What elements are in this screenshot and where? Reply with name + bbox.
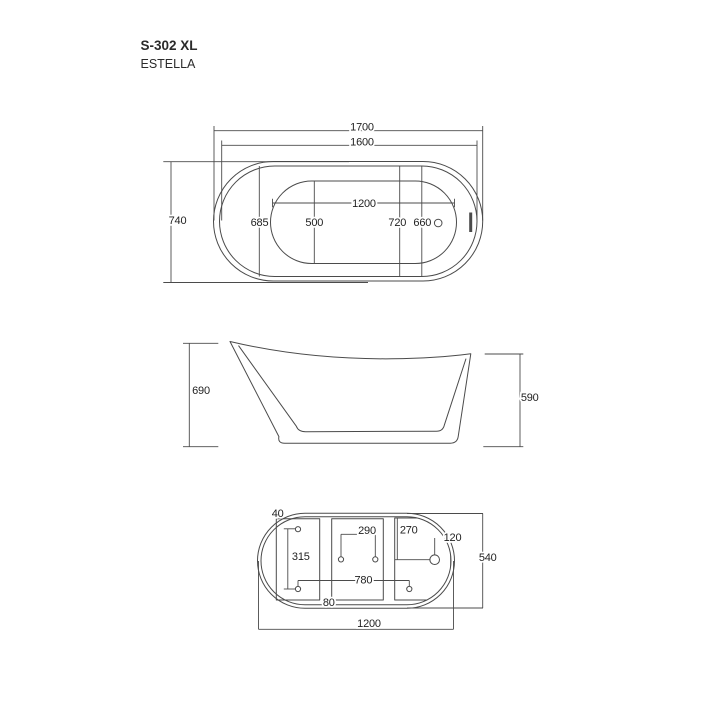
- foot-hole: [373, 557, 378, 562]
- foot-hole: [338, 557, 343, 562]
- dim-290-label: 290: [358, 525, 376, 537]
- dim-1200-label: 1200: [352, 198, 376, 210]
- dim-660-label: 660: [413, 217, 431, 229]
- dim-780-label: 780: [355, 574, 373, 586]
- drain-outlet-hole: [430, 555, 440, 565]
- foot-hole: [295, 527, 300, 532]
- drain-hole: [434, 219, 442, 227]
- dim-40-label: 40: [272, 508, 284, 520]
- bottom-view: 40 315 290 270 120 540 780 80 1200: [258, 508, 497, 630]
- foot-hole: [407, 586, 412, 591]
- dim-315-label: 315: [292, 551, 310, 563]
- dim-720-label: 720: [388, 217, 406, 229]
- dim-1200-base-label: 1200: [357, 618, 381, 630]
- dim-500-label: 500: [305, 217, 323, 229]
- foot-hole: [295, 586, 300, 591]
- dim-590-label: 590: [521, 392, 539, 404]
- dim-740-label: 740: [169, 215, 187, 227]
- dim-1700-label: 1700: [350, 121, 374, 133]
- base-outer-outline: [258, 513, 455, 608]
- dim-690-label: 690: [192, 385, 210, 397]
- title-block: S-302 XL ESTELLA: [141, 38, 198, 71]
- overflow-slot: [469, 213, 472, 233]
- side-view: 690 590: [183, 342, 539, 447]
- dim-270-label: 270: [400, 524, 418, 536]
- dim-80-label: 80: [323, 597, 335, 609]
- technical-drawing-page: S-302 XL ESTELLA 1700: [0, 0, 720, 720]
- dim-685-label: 685: [251, 217, 269, 229]
- tub-profile-outer: [230, 342, 471, 444]
- top-view: 1700 1600 740 685 500 1200 720 660: [163, 121, 482, 282]
- dim-540-label: 540: [479, 552, 497, 564]
- dim-120-label: 120: [444, 532, 462, 544]
- series-name: ESTELLA: [141, 57, 197, 71]
- bathtub-dimension-drawing: S-302 XL ESTELLA 1700: [0, 0, 720, 720]
- base-inner-outline: [261, 517, 451, 605]
- dim-1600-label: 1600: [350, 136, 374, 148]
- model-number: S-302 XL: [141, 38, 198, 53]
